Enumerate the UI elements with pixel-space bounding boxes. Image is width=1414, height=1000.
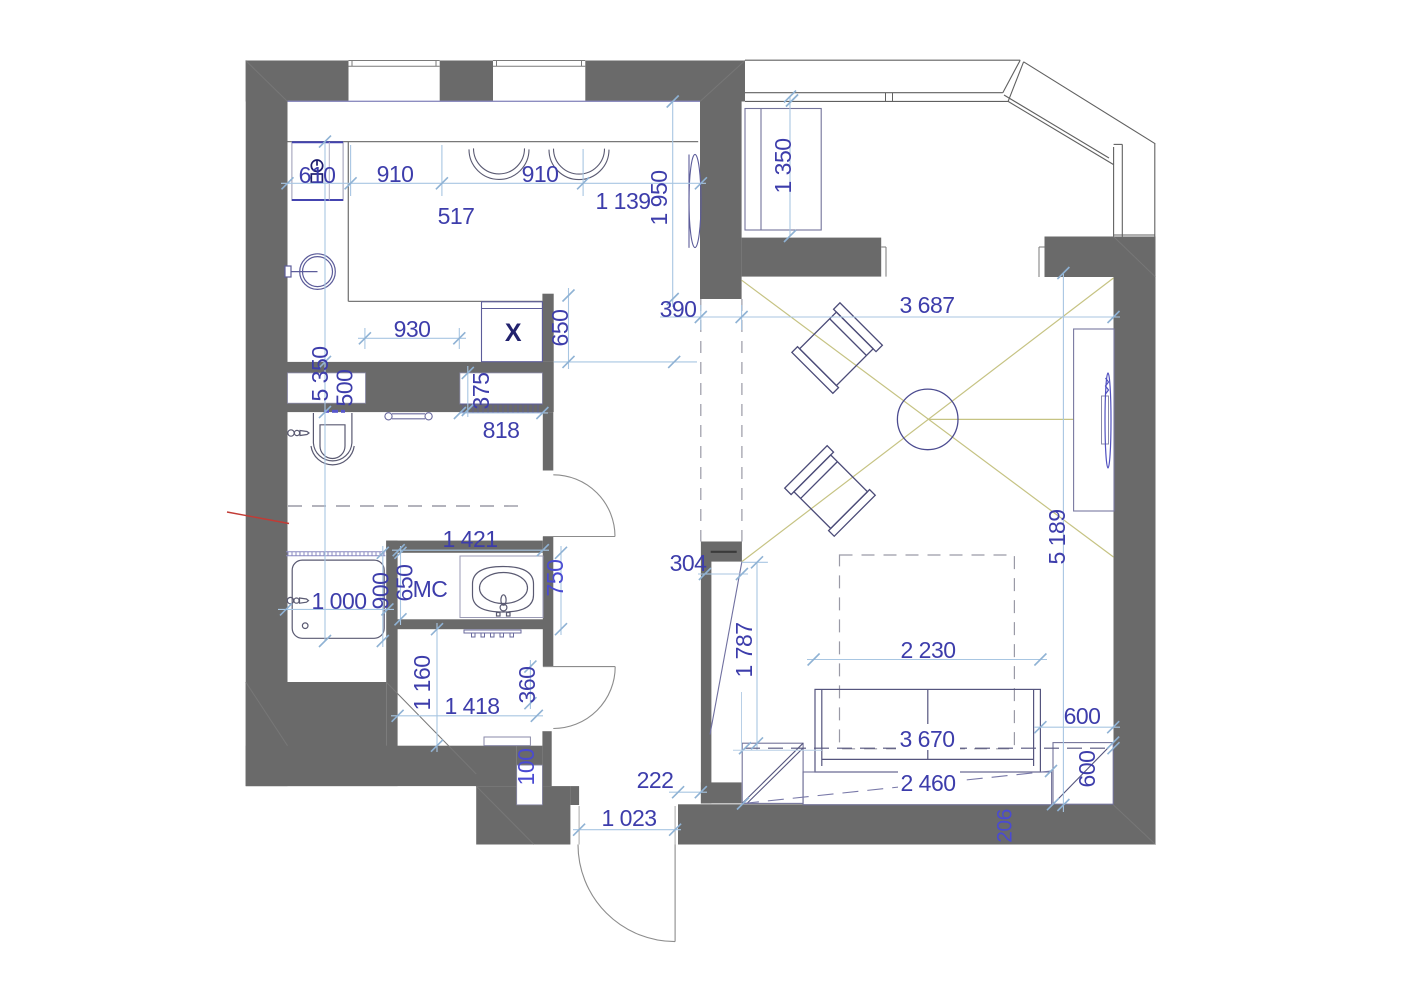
svg-text:222: 222 <box>637 767 674 793</box>
svg-text:1 160: 1 160 <box>409 655 435 710</box>
svg-text:610: 610 <box>299 162 336 188</box>
svg-text:304: 304 <box>670 550 708 576</box>
svg-text:206: 206 <box>994 809 1017 843</box>
svg-text:1 350: 1 350 <box>770 138 796 193</box>
svg-text:2 230: 2 230 <box>900 637 955 663</box>
svg-text:100: 100 <box>513 749 539 786</box>
svg-text:750: 750 <box>542 560 568 597</box>
svg-text:375: 375 <box>468 373 494 410</box>
svg-text:1 023: 1 023 <box>601 805 656 831</box>
svg-text:1 787: 1 787 <box>731 622 757 677</box>
svg-text:5 189: 5 189 <box>1044 509 1070 564</box>
svg-text:390: 390 <box>660 296 697 322</box>
svg-text:930: 930 <box>394 316 431 342</box>
svg-text:900: 900 <box>368 573 394 610</box>
svg-text:5 350: 5 350 <box>307 346 333 401</box>
svg-text:2 460: 2 460 <box>900 770 955 796</box>
svg-text:3 670: 3 670 <box>899 726 954 752</box>
svg-text:818: 818 <box>483 417 520 443</box>
svg-text:517: 517 <box>438 203 475 229</box>
svg-text:MC: MC <box>413 576 448 602</box>
svg-text:1 000: 1 000 <box>311 588 366 614</box>
svg-text:600: 600 <box>1064 703 1101 729</box>
svg-text:600: 600 <box>1074 751 1100 788</box>
svg-text:910: 910 <box>377 161 414 187</box>
svg-text:910: 910 <box>522 161 559 187</box>
svg-text:1 139: 1 139 <box>595 188 650 214</box>
svg-text:3 687: 3 687 <box>899 292 954 318</box>
svg-text:500: 500 <box>332 370 358 407</box>
svg-text:1 950: 1 950 <box>646 170 672 225</box>
svg-text:360: 360 <box>514 667 540 704</box>
svg-text:650: 650 <box>547 310 573 347</box>
svg-text:1 418: 1 418 <box>444 693 499 719</box>
svg-text:1 421: 1 421 <box>442 526 497 552</box>
svg-text:X: X <box>505 319 522 347</box>
